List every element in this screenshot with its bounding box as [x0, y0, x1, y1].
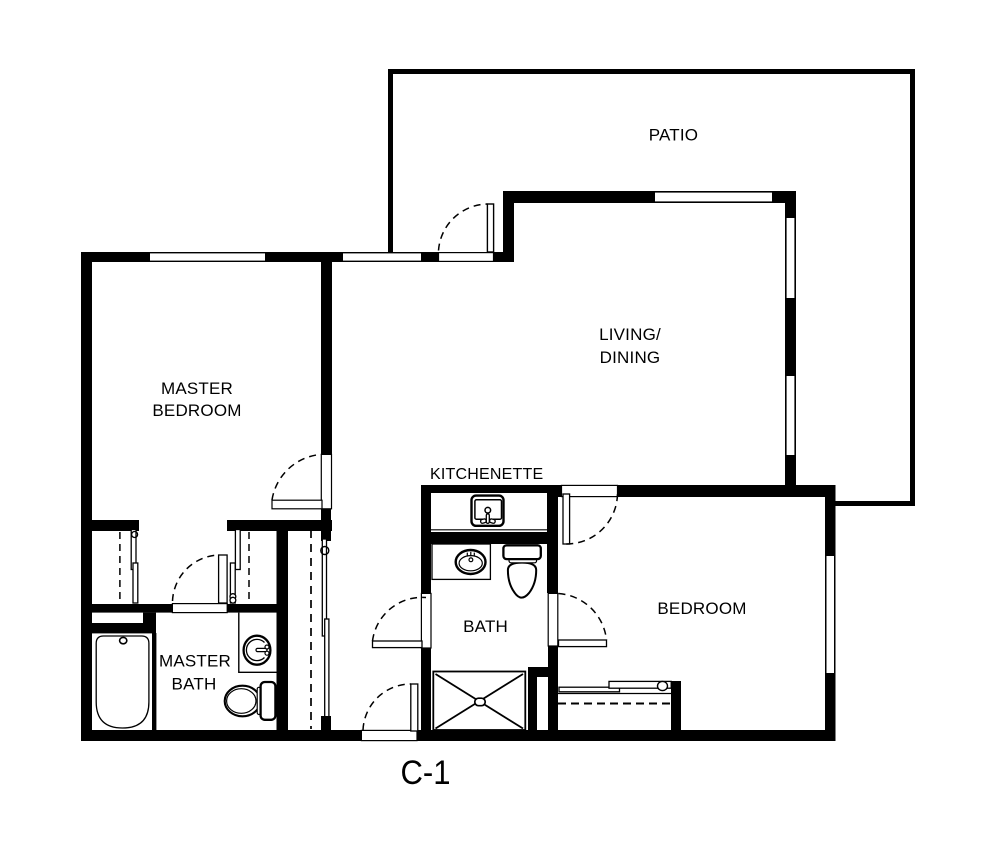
svg-text:BATH: BATH [172, 675, 217, 694]
svg-text:BEDROOM: BEDROOM [152, 401, 241, 420]
svg-text:PATIO: PATIO [649, 126, 699, 145]
svg-text:MASTER: MASTER [159, 652, 231, 671]
svg-text:DINING: DINING [600, 348, 661, 367]
svg-text:KITCHENETTE: KITCHENETTE [430, 466, 543, 483]
svg-text:MASTER: MASTER [161, 379, 233, 398]
svg-text:BEDROOM: BEDROOM [657, 599, 746, 618]
svg-text:LIVING/: LIVING/ [599, 325, 661, 344]
svg-text:BATH: BATH [463, 617, 508, 636]
svg-text:C-1: C-1 [401, 754, 451, 792]
